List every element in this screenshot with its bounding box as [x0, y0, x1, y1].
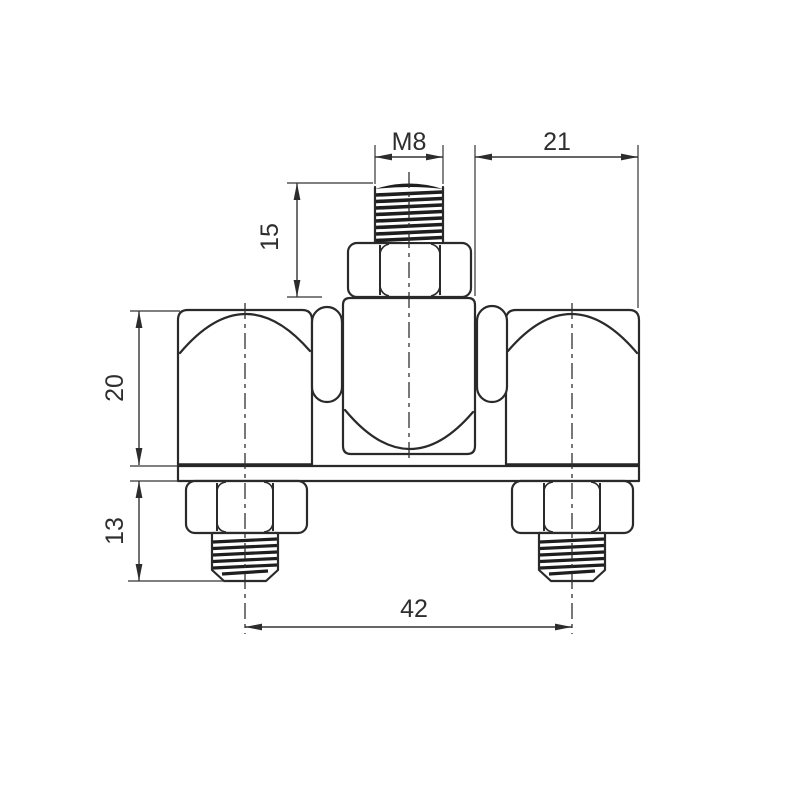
dim-label-thread-size: M8 [392, 128, 427, 156]
dimension-42: 42 [245, 595, 572, 630]
right-pin-outline [477, 306, 507, 402]
arrowhead [294, 280, 301, 297]
dim-label-stud-spacing: 42 [400, 595, 428, 623]
dim-label-right-offset: 21 [543, 128, 571, 156]
arrowhead [555, 624, 572, 631]
base-plate-outline [178, 466, 639, 481]
arrowhead [136, 311, 143, 328]
arrowhead [136, 448, 143, 465]
bottom-left-nut-outline [186, 481, 307, 533]
dim-label-body-height: 20 [101, 374, 129, 402]
arrowhead [375, 154, 392, 161]
right-roller-pin [477, 306, 507, 402]
dimension-21: 21 [475, 128, 638, 308]
arrowhead [136, 564, 143, 581]
arrowhead [475, 154, 492, 161]
dimension-20: 20 [101, 311, 180, 466]
arrowhead [294, 183, 301, 200]
dim-label-bottom-stud-length: 13 [101, 517, 129, 545]
drawing-svg: M8 21 15 20 13 [0, 0, 800, 800]
technical-drawing: M8 21 15 20 13 [0, 0, 800, 800]
dim-label-top-stud-length: 15 [256, 223, 284, 251]
arrowhead [245, 624, 262, 631]
arrowhead [621, 154, 638, 161]
arrowhead [136, 481, 143, 498]
left-pin-outline [312, 307, 342, 402]
arrowhead [426, 154, 443, 161]
left-roller-pin [312, 307, 342, 402]
base-plate [178, 466, 639, 481]
bottom-left-hex-nut [186, 481, 307, 533]
